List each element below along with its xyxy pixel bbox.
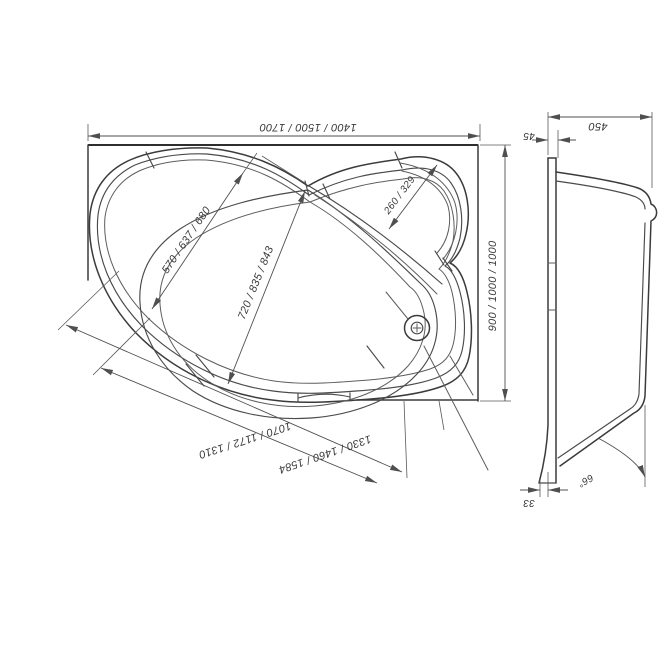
- side-base-dimension-label: 33: [523, 497, 535, 508]
- side-dimensions: 450 45 33 66°: [520, 112, 652, 508]
- corner-leader: [450, 356, 473, 395]
- tub-outer-rim-path: [89, 148, 471, 402]
- side-depth-dimension-label: 450: [588, 120, 608, 132]
- rim-joint-tick-7: [186, 364, 204, 386]
- side-apron-ticks: [548, 263, 556, 310]
- side-body-inner: [556, 181, 645, 209]
- depth-dimension-label: 900 / 1000 / 1000: [487, 240, 499, 331]
- bathtub-drawing: 1400 / 1500 / 1700 900 / 1000 / 1000 570…: [0, 0, 666, 645]
- angle-arc: [598, 438, 645, 477]
- front-inner-dimension-line: [101, 368, 377, 483]
- plan-view: 1400 / 1500 / 1700 900 / 1000 / 1000 570…: [58, 121, 511, 483]
- front-right-extension-lines: [404, 401, 444, 478]
- front-outer-dimension-label: 1330 / 1460 / 1584: [277, 432, 373, 475]
- width-dimension-label: 1400 / 1500 / 1700: [259, 121, 357, 133]
- angle-dimension-label: 66°: [576, 471, 595, 489]
- inner-length-dimension-line: [228, 191, 305, 384]
- rim-joint-tick-9: [146, 152, 154, 168]
- inner-length-dimension-label: 720 / 835 / 843: [236, 244, 277, 321]
- drain-cross: [413, 324, 421, 332]
- front-inner-dimension-label: 1070 / 1172 / 1310: [197, 419, 293, 460]
- side-body-inner-right: [558, 223, 645, 458]
- rim-joint-tick-8: [367, 346, 384, 368]
- seat-edge-line-2: [315, 195, 437, 294]
- inner-width-dimension-label: 570 / 637 / 680: [160, 204, 214, 276]
- basin-bottom-path: [160, 202, 425, 407]
- seat-edge-line-1: [309, 186, 442, 284]
- technical-drawing-sheet: 1400 / 1500 / 1700 900 / 1000 / 1000 570…: [0, 0, 666, 645]
- apron-tab: [298, 393, 350, 401]
- drain-leader-upper: [386, 292, 408, 319]
- side-view: 450 45 33 66°: [520, 112, 657, 508]
- side-apron-left-edge: [539, 158, 548, 483]
- side-rim-dimension-label: 45: [523, 130, 535, 141]
